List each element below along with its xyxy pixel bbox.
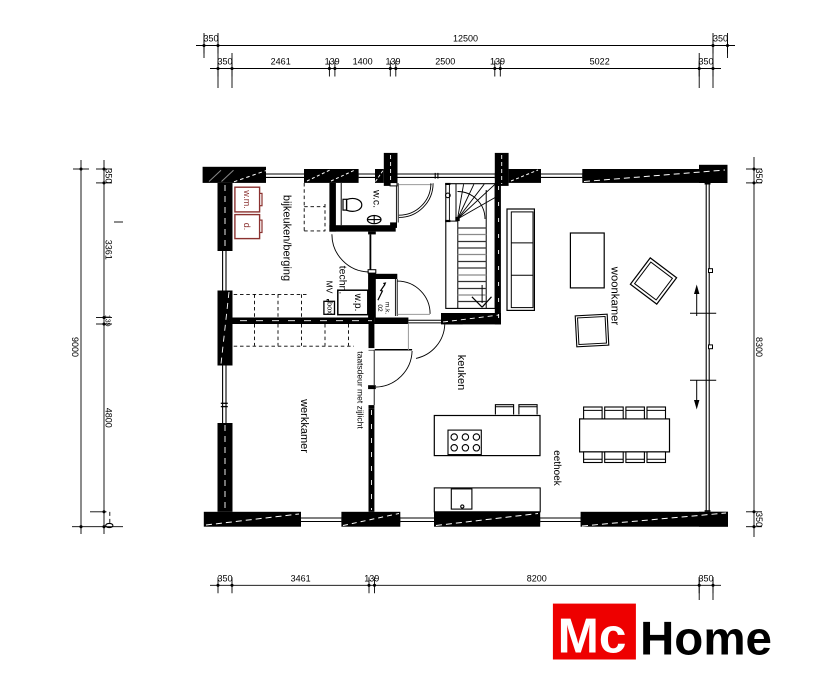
svg-text:1400: 1400 — [353, 57, 373, 67]
svg-text:350: 350 — [698, 573, 713, 583]
svg-text:MV: MV — [324, 281, 334, 294]
svg-text:bijkeuken/berging: bijkeuken/berging — [281, 195, 293, 281]
svg-text:w.p.: w.p. — [352, 293, 363, 312]
svg-text:9000: 9000 — [70, 337, 80, 357]
svg-text:350: 350 — [217, 573, 232, 583]
svg-text:12500: 12500 — [453, 34, 478, 44]
svg-text:3461: 3461 — [291, 573, 311, 583]
svg-text:eethoek: eethoek — [551, 450, 562, 487]
svg-text:350: 350 — [698, 57, 713, 67]
svg-text:m.k.: m.k. — [383, 302, 390, 314]
svg-text:350: 350 — [203, 34, 218, 44]
svg-text:Home: Home — [640, 613, 772, 666]
svg-text:350: 350 — [754, 512, 764, 527]
svg-text:8300: 8300 — [754, 337, 764, 357]
svg-text:taatsdeur met zijlicht: taatsdeur met zijlicht — [355, 351, 365, 429]
svg-text:4800: 4800 — [104, 408, 114, 428]
svg-text:139: 139 — [490, 57, 505, 67]
svg-text:02: 02 — [376, 304, 383, 312]
svg-text:350: 350 — [104, 168, 114, 183]
svg-text:5022: 5022 — [590, 57, 610, 67]
svg-text:keuken: keuken — [455, 355, 467, 390]
svg-text:139: 139 — [385, 57, 400, 67]
svg-text:2461: 2461 — [271, 57, 291, 67]
svg-text:werkkamer: werkkamer — [298, 398, 310, 453]
svg-text:350: 350 — [217, 57, 232, 67]
svg-text:350: 350 — [754, 168, 764, 183]
svg-text:w.c.: w.c. — [370, 189, 382, 208]
svg-text:139: 139 — [364, 573, 379, 583]
svg-text:139: 139 — [325, 57, 340, 67]
svg-text:w.m.: w.m. — [242, 189, 252, 209]
svg-text:d.: d. — [242, 223, 252, 231]
svg-text:2500: 2500 — [435, 57, 455, 67]
svg-text:3361: 3361 — [104, 240, 114, 260]
svg-text:8200: 8200 — [527, 573, 547, 583]
svg-text:350: 350 — [713, 34, 728, 44]
svg-text:Mc: Mc — [558, 609, 627, 664]
svg-text:woonkamer: woonkamer — [608, 266, 620, 326]
svg-text:techn.: techn. — [337, 266, 349, 295]
svg-text:box: box — [326, 302, 335, 314]
svg-text:139: 139 — [104, 315, 111, 327]
